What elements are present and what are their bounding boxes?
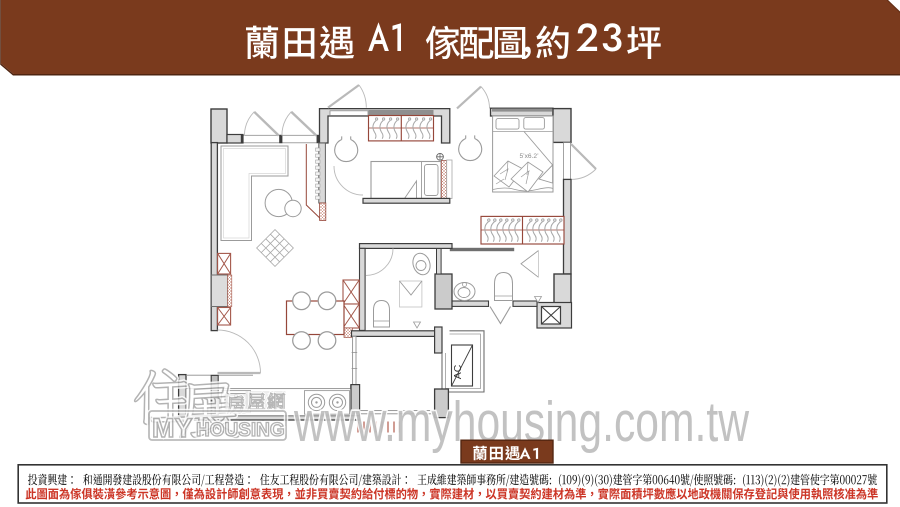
svg-text:AC: AC [452, 364, 464, 379]
svg-text:HOUSING: HOUSING [196, 420, 285, 441]
svg-text:5’x6.2’: 5’x6.2’ [519, 153, 539, 160]
svg-text:MY: MY [152, 413, 193, 443]
